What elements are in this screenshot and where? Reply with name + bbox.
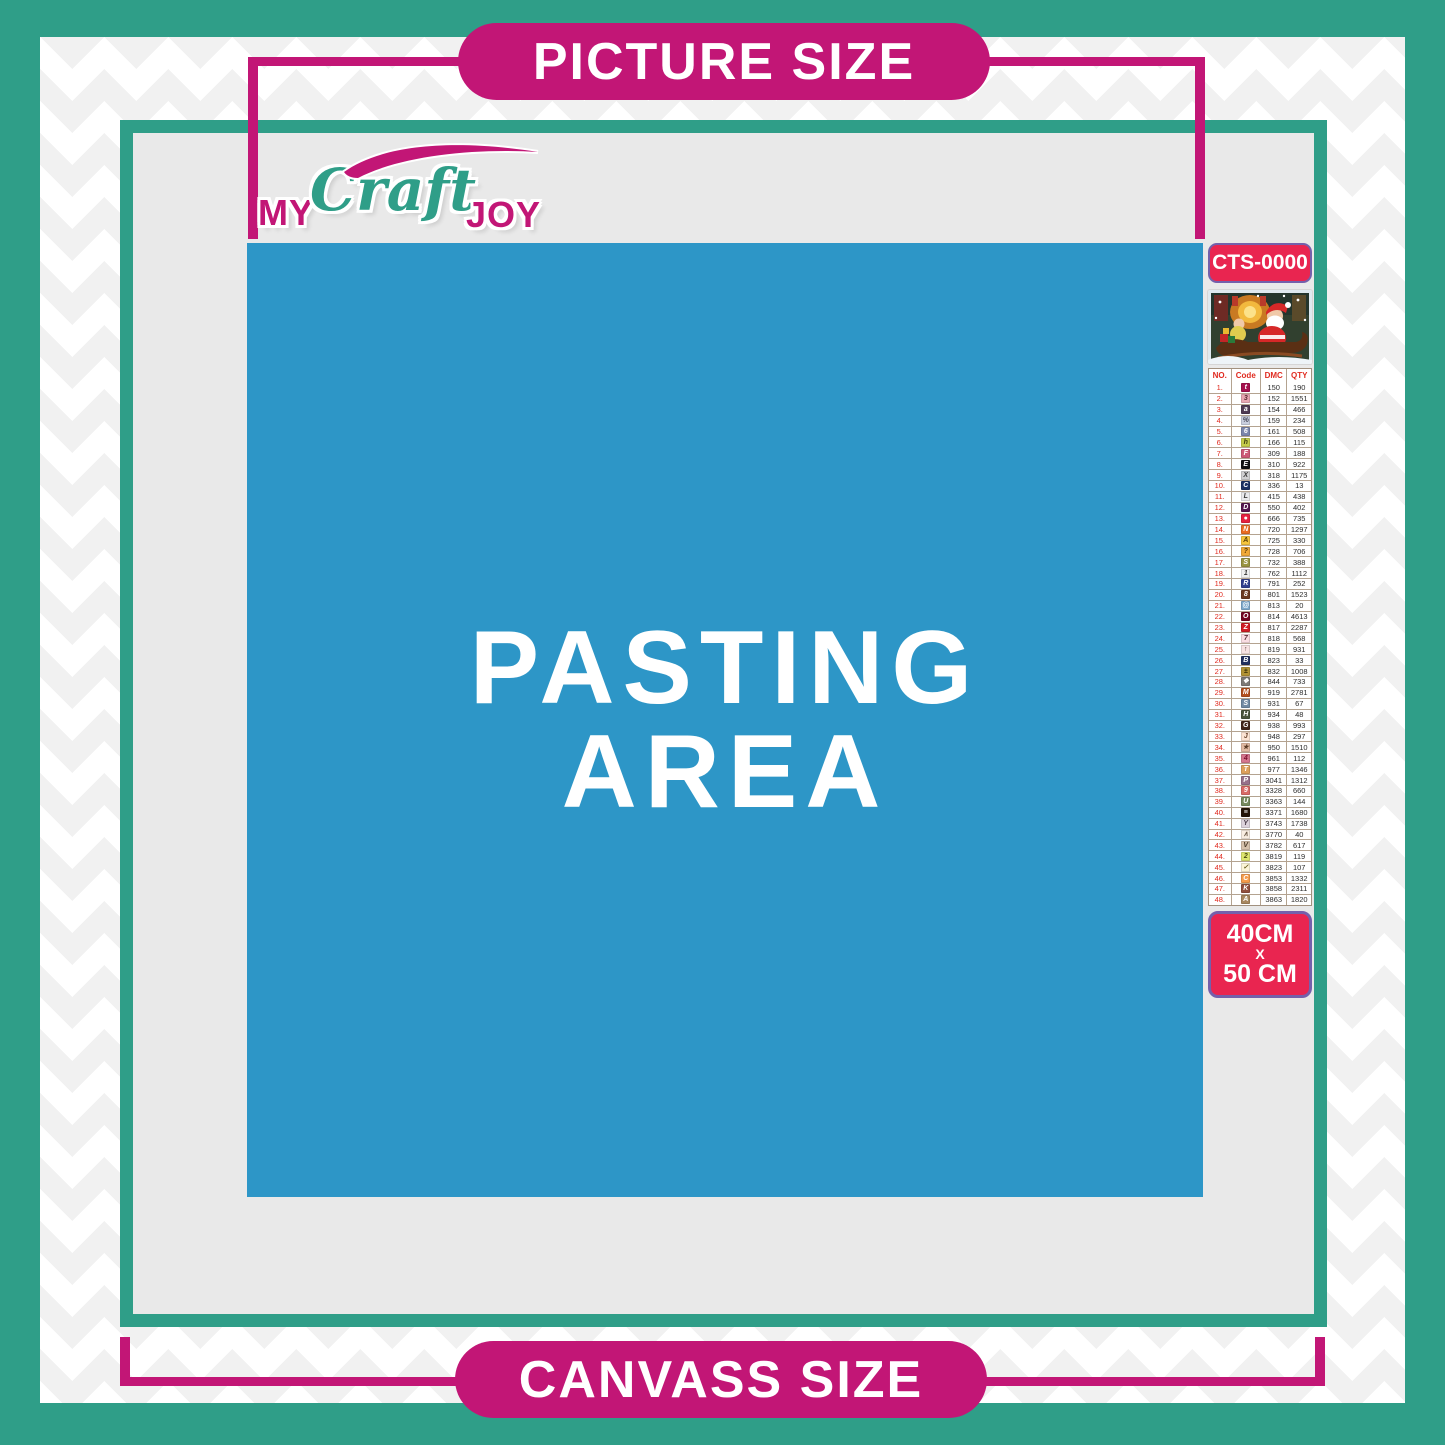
cell-code: t	[1231, 382, 1260, 393]
cell-no: 12.	[1209, 503, 1231, 513]
dmc-table-row: 25.↑819931	[1209, 643, 1311, 654]
cell-dmc: 791	[1260, 579, 1286, 589]
cell-no: 34.	[1209, 742, 1231, 752]
cell-code: @	[1231, 601, 1260, 611]
color-symbol-chip: F	[1241, 449, 1250, 458]
cell-qty: 568	[1286, 633, 1311, 643]
cell-dmc: 3782	[1260, 840, 1286, 850]
cell-no: 44.	[1209, 851, 1231, 861]
cell-qty: 922	[1286, 459, 1311, 469]
cell-dmc: 666	[1260, 514, 1286, 524]
cell-dmc: 3371	[1260, 808, 1286, 818]
color-symbol-chip: X	[1241, 471, 1250, 480]
cell-code: O	[1231, 612, 1260, 622]
cell-code: 6	[1231, 427, 1260, 437]
cell-code: E	[1231, 459, 1260, 469]
color-symbol-chip: h	[1241, 438, 1250, 447]
cell-qty: 617	[1286, 840, 1311, 850]
dmc-table-row: 37.P30411312	[1209, 774, 1311, 785]
cell-dmc: 948	[1260, 732, 1286, 742]
cell-no: 45.	[1209, 862, 1231, 872]
cell-dmc: 732	[1260, 557, 1286, 567]
color-symbol-chip: B	[1241, 656, 1250, 665]
color-symbol-chip: R	[1241, 579, 1250, 588]
color-symbol-chip: Z	[1241, 623, 1250, 632]
cell-dmc: 3853	[1260, 873, 1286, 883]
canvass-size-bracket-left	[120, 1337, 130, 1386]
cell-no: 7.	[1209, 448, 1231, 458]
cell-dmc: 813	[1260, 601, 1286, 611]
color-symbol-chip: ●	[1241, 514, 1250, 523]
picture-size-bracket-right	[1195, 57, 1205, 239]
dmc-table-row: 39.U3363144	[1209, 796, 1311, 807]
dmc-table-row: 11.L415438	[1209, 491, 1311, 502]
cell-qty: 188	[1286, 448, 1311, 458]
color-symbol-chip: 7	[1241, 634, 1250, 643]
cell-no: 32.	[1209, 721, 1231, 731]
cell-dmc: 3770	[1260, 830, 1286, 840]
cell-qty: 1523	[1286, 590, 1311, 600]
cell-code: A	[1231, 895, 1260, 905]
color-symbol-chip: S	[1241, 699, 1250, 708]
dmc-table-row: 38.93328660	[1209, 785, 1311, 796]
cell-code: V	[1231, 840, 1260, 850]
cell-code: R	[1231, 579, 1260, 589]
color-symbol-chip: ✓	[1241, 863, 1250, 872]
cell-qty: 1312	[1286, 775, 1311, 785]
dmc-table-row: 6.h166115	[1209, 436, 1311, 447]
cell-dmc: 3328	[1260, 786, 1286, 796]
cell-code: %	[1231, 416, 1260, 426]
dmc-table-row: 21.@81320	[1209, 600, 1311, 611]
cell-qty: 1112	[1286, 568, 1311, 578]
cell-code: h	[1231, 437, 1260, 447]
dmc-table-header: NO. Code DMC QTY	[1209, 369, 1311, 382]
infographic-canvas: PICTURE SIZE CANVASS SIZE MY Craft JOY P…	[0, 0, 1445, 1445]
color-symbol-chip: a	[1241, 405, 1250, 414]
dmc-table-row: 28.❖844733	[1209, 676, 1311, 687]
cell-dmc: 3823	[1260, 862, 1286, 872]
cell-qty: 13	[1286, 481, 1311, 491]
color-symbol-chip: P	[1241, 776, 1250, 785]
cell-no: 39.	[1209, 797, 1231, 807]
cell-qty: 706	[1286, 546, 1311, 556]
cell-qty: 2287	[1286, 623, 1311, 633]
header-code: Code	[1231, 369, 1260, 382]
color-symbol-chip: ≡	[1241, 808, 1250, 817]
cell-code: ≡	[1231, 808, 1260, 818]
cell-no: 31.	[1209, 710, 1231, 720]
dmc-table-row: 14.N7201297	[1209, 524, 1311, 535]
size-height-text: 50 CM	[1223, 962, 1297, 988]
cell-code: S	[1231, 557, 1260, 567]
cell-code: ★	[1231, 742, 1260, 752]
cell-code: J	[1231, 732, 1260, 742]
cell-no: 5.	[1209, 427, 1231, 437]
cell-qty: 1510	[1286, 742, 1311, 752]
cell-no: 2.	[1209, 394, 1231, 404]
cell-code: A	[1231, 535, 1260, 545]
dmc-table-row: 47.K38582311	[1209, 883, 1311, 894]
color-symbol-chip: 8	[1241, 590, 1250, 599]
cell-dmc: 818	[1260, 633, 1286, 643]
cell-no: 25.	[1209, 644, 1231, 654]
dmc-table-row: 16.?728706	[1209, 545, 1311, 556]
cell-code: 4	[1231, 753, 1260, 763]
cell-no: 15.	[1209, 535, 1231, 545]
dmc-table-row: 43.V3782617	[1209, 839, 1311, 850]
color-symbol-chip: C	[1241, 874, 1250, 883]
color-symbol-chip: K	[1241, 884, 1250, 893]
cell-qty: 931	[1286, 644, 1311, 654]
dmc-table-row: 34.★9501510	[1209, 741, 1311, 752]
cell-no: 14.	[1209, 525, 1231, 535]
dmc-table-row: 40.≡33711680	[1209, 807, 1311, 818]
cell-qty: 1551	[1286, 394, 1311, 404]
canvass-size-text: CANVASS SIZE	[519, 1350, 923, 1410]
cell-qty: 735	[1286, 514, 1311, 524]
cell-qty: 1175	[1286, 470, 1311, 480]
cell-no: 35.	[1209, 753, 1231, 763]
cell-dmc: 832	[1260, 666, 1286, 676]
dmc-table-row: 3.a154466	[1209, 404, 1311, 415]
color-symbol-chip: ±	[1241, 667, 1250, 676]
cell-code: 2	[1231, 851, 1260, 861]
dmc-table-row: 12.D550402	[1209, 502, 1311, 513]
cell-code: C	[1231, 481, 1260, 491]
cell-no: 23.	[1209, 623, 1231, 633]
dmc-table-row: 22.O8144613	[1209, 611, 1311, 622]
color-symbol-chip: Y	[1241, 819, 1250, 828]
cell-code: L	[1231, 492, 1260, 502]
color-symbol-chip: 9	[1241, 786, 1250, 795]
cell-dmc: 950	[1260, 742, 1286, 752]
color-symbol-chip: 4	[1241, 754, 1250, 763]
cell-no: 47.	[1209, 884, 1231, 894]
cell-qty: 252	[1286, 579, 1311, 589]
cell-no: 6.	[1209, 437, 1231, 447]
dmc-table-row: 18.17621112	[1209, 567, 1311, 578]
cell-no: 16.	[1209, 546, 1231, 556]
cell-dmc: 934	[1260, 710, 1286, 720]
cell-code: G	[1231, 721, 1260, 731]
cell-code: M	[1231, 688, 1260, 698]
color-symbol-chip: ∧	[1241, 830, 1250, 839]
cell-dmc: 977	[1260, 764, 1286, 774]
dmc-table-row: 30.S93167	[1209, 698, 1311, 709]
dmc-table-row: 27.±8321008	[1209, 665, 1311, 676]
cell-no: 40.	[1209, 808, 1231, 818]
cell-dmc: 159	[1260, 416, 1286, 426]
cell-code: Z	[1231, 623, 1260, 633]
product-code-badge: CTS-0000	[1208, 243, 1312, 283]
color-legend-panel: CTS-0000	[1208, 243, 1312, 283]
cell-dmc: 725	[1260, 535, 1286, 545]
cell-no: 20.	[1209, 590, 1231, 600]
cell-code: 3	[1231, 394, 1260, 404]
dmc-table-row: 20.88011523	[1209, 589, 1311, 600]
cell-qty: 733	[1286, 677, 1311, 687]
dmc-table-row: 35.4961112	[1209, 752, 1311, 763]
cell-qty: 4613	[1286, 612, 1311, 622]
cell-no: 11.	[1209, 492, 1231, 502]
color-symbol-chip: ?	[1241, 547, 1250, 556]
cell-code: 1	[1231, 568, 1260, 578]
dmc-table-row: 19.R791252	[1209, 578, 1311, 589]
dmc-table-row: 13.●666735	[1209, 513, 1311, 524]
cell-no: 9.	[1209, 470, 1231, 480]
cell-code: U	[1231, 797, 1260, 807]
dmc-table-row: 10.C33613	[1209, 480, 1311, 491]
cell-code: 7	[1231, 633, 1260, 643]
cell-dmc: 310	[1260, 459, 1286, 469]
cell-qty: 1346	[1286, 764, 1311, 774]
cell-dmc: 336	[1260, 481, 1286, 491]
cell-qty: 438	[1286, 492, 1311, 502]
cell-no: 17.	[1209, 557, 1231, 567]
cell-no: 38.	[1209, 786, 1231, 796]
cell-code: B	[1231, 655, 1260, 665]
color-symbol-chip: t	[1241, 383, 1250, 392]
cell-qty: 144	[1286, 797, 1311, 807]
cell-dmc: 318	[1260, 470, 1286, 480]
color-symbol-chip: H	[1241, 710, 1250, 719]
cell-qty: 993	[1286, 721, 1311, 731]
cell-qty: 660	[1286, 786, 1311, 796]
cell-dmc: 844	[1260, 677, 1286, 687]
cell-code: P	[1231, 775, 1260, 785]
picture-size-label: PICTURE SIZE	[458, 23, 990, 100]
cell-qty: 297	[1286, 732, 1311, 742]
color-symbol-chip: N	[1241, 525, 1250, 534]
cell-no: 10.	[1209, 481, 1231, 491]
cell-dmc: 801	[1260, 590, 1286, 600]
color-symbol-chip: A	[1241, 536, 1250, 545]
cell-code: F	[1231, 448, 1260, 458]
cell-qty: 107	[1286, 862, 1311, 872]
cell-no: 18.	[1209, 568, 1231, 578]
cell-code: 9	[1231, 786, 1260, 796]
canvass-size-label: CANVASS SIZE	[455, 1341, 987, 1418]
cell-dmc: 309	[1260, 448, 1286, 458]
cell-dmc: 3743	[1260, 819, 1286, 829]
dmc-table-row: 23.Z8172287	[1209, 622, 1311, 633]
cell-code: ±	[1231, 666, 1260, 676]
dmc-table-row: 1.t150190	[1209, 382, 1311, 393]
cell-code: S	[1231, 699, 1260, 709]
logo-my-text: MY	[258, 192, 314, 234]
dmc-table-row: 7.F309188	[1209, 447, 1311, 458]
cell-no: 43.	[1209, 840, 1231, 850]
dmc-table-body: 1.t1501902.315215513.a1544664.%1592345.6…	[1209, 382, 1311, 905]
dmc-table-row: 36.T9771346	[1209, 763, 1311, 774]
cell-dmc: 762	[1260, 568, 1286, 578]
pasting-area-text-line1: PASTING	[470, 616, 981, 720]
pasting-area-text-line2: AREA	[562, 720, 889, 824]
dmc-table-row: 48.A38631820	[1209, 894, 1311, 905]
dmc-table-row: 9.X3181175	[1209, 469, 1311, 480]
cell-qty: 1680	[1286, 808, 1311, 818]
cell-no: 46.	[1209, 873, 1231, 883]
cell-no: 26.	[1209, 655, 1231, 665]
color-symbol-chip: L	[1241, 492, 1250, 501]
header-qty: QTY	[1286, 369, 1311, 382]
dmc-table-row: 46.C38531332	[1209, 872, 1311, 883]
cell-qty: 119	[1286, 851, 1311, 861]
cell-dmc: 150	[1260, 382, 1286, 393]
cell-dmc: 720	[1260, 525, 1286, 535]
cell-code: ✓	[1231, 862, 1260, 872]
color-symbol-chip: 3	[1241, 394, 1250, 403]
cell-dmc: 152	[1260, 394, 1286, 404]
dmc-table-row: 24.7818568	[1209, 632, 1311, 643]
cell-qty: 1332	[1286, 873, 1311, 883]
cell-dmc: 3363	[1260, 797, 1286, 807]
cell-code: Y	[1231, 819, 1260, 829]
cell-code: H	[1231, 710, 1260, 720]
cell-no: 28.	[1209, 677, 1231, 687]
brush-swoosh-icon	[338, 138, 548, 182]
dmc-table-row: 8.E310922	[1209, 458, 1311, 469]
canvass-size-bracket-right	[1315, 1337, 1325, 1386]
color-symbol-chip: ↑	[1241, 645, 1250, 654]
cell-qty: 115	[1286, 437, 1311, 447]
cell-no: 36.	[1209, 764, 1231, 774]
dmc-table-row: 5.6161508	[1209, 426, 1311, 437]
cell-dmc: 931	[1260, 699, 1286, 709]
cell-no: 24.	[1209, 633, 1231, 643]
header-dmc: DMC	[1260, 369, 1286, 382]
dmc-table-row: 33.J948297	[1209, 731, 1311, 742]
dmc-table-row: 26.B82333	[1209, 654, 1311, 665]
size-width-text: 40CM	[1227, 922, 1294, 948]
cell-dmc: 154	[1260, 405, 1286, 415]
cell-qty: 112	[1286, 753, 1311, 763]
color-symbol-chip: ❖	[1241, 677, 1250, 686]
cell-qty: 67	[1286, 699, 1311, 709]
cell-dmc: 550	[1260, 503, 1286, 513]
cell-qty: 40	[1286, 830, 1311, 840]
cell-code: ∧	[1231, 830, 1260, 840]
cell-dmc: 817	[1260, 623, 1286, 633]
dmc-color-table: NO. Code DMC QTY 1.t1501902.315215513.a1…	[1208, 368, 1312, 906]
cell-qty: 1008	[1286, 666, 1311, 676]
cell-no: 42.	[1209, 830, 1231, 840]
cell-qty: 330	[1286, 535, 1311, 545]
cell-dmc: 3819	[1260, 851, 1286, 861]
product-thumbnail-image	[1208, 290, 1312, 364]
cell-code: X	[1231, 470, 1260, 480]
cell-no: 22.	[1209, 612, 1231, 622]
cell-dmc: 3858	[1260, 884, 1286, 894]
cell-code: N	[1231, 525, 1260, 535]
dmc-table-row: 15.A725330	[1209, 534, 1311, 545]
cell-code: ❖	[1231, 677, 1260, 687]
cell-qty: 190	[1286, 382, 1311, 393]
color-symbol-chip: E	[1241, 460, 1250, 469]
cell-qty: 466	[1286, 405, 1311, 415]
cell-no: 13.	[1209, 514, 1231, 524]
color-symbol-chip: A	[1241, 895, 1250, 904]
dmc-table-row: 44.23819119	[1209, 850, 1311, 861]
color-symbol-chip: C	[1241, 481, 1250, 490]
cell-no: 37.	[1209, 775, 1231, 785]
dmc-table-row: 45.✓3823107	[1209, 861, 1311, 872]
cell-dmc: 161	[1260, 427, 1286, 437]
cell-code: C	[1231, 873, 1260, 883]
cell-dmc: 166	[1260, 437, 1286, 447]
cell-code: ●	[1231, 514, 1260, 524]
color-symbol-chip: T	[1241, 765, 1250, 774]
product-code-text: CTS-0000	[1212, 251, 1308, 275]
header-no: NO.	[1209, 369, 1231, 382]
dmc-table-row: 29.M9192781	[1209, 687, 1311, 698]
cell-code: T	[1231, 764, 1260, 774]
dmc-table-row: 32.G938993	[1209, 720, 1311, 731]
cell-no: 1.	[1209, 382, 1231, 393]
cell-dmc: 728	[1260, 546, 1286, 556]
cell-dmc: 819	[1260, 644, 1286, 654]
cell-qty: 1297	[1286, 525, 1311, 535]
cell-dmc: 814	[1260, 612, 1286, 622]
cell-no: 3.	[1209, 405, 1231, 415]
cell-qty: 508	[1286, 427, 1311, 437]
color-symbol-chip: G	[1241, 721, 1250, 730]
cell-code: 8	[1231, 590, 1260, 600]
color-symbol-chip: 6	[1241, 427, 1250, 436]
cell-code: K	[1231, 884, 1260, 894]
cell-no: 21.	[1209, 601, 1231, 611]
cell-qty: 1738	[1286, 819, 1311, 829]
cell-no: 27.	[1209, 666, 1231, 676]
cell-qty: 388	[1286, 557, 1311, 567]
cell-dmc: 961	[1260, 753, 1286, 763]
color-symbol-chip: O	[1241, 612, 1250, 621]
cell-qty: 234	[1286, 416, 1311, 426]
color-symbol-chip: J	[1241, 732, 1250, 741]
cell-qty: 402	[1286, 503, 1311, 513]
color-symbol-chip: D	[1241, 503, 1250, 512]
dmc-table-row: 31.H93448	[1209, 709, 1311, 720]
picture-size-text: PICTURE SIZE	[533, 32, 915, 92]
picture-size-bracket-left	[248, 57, 258, 239]
color-symbol-chip: S	[1241, 558, 1250, 567]
cell-no: 8.	[1209, 459, 1231, 469]
cell-no: 48.	[1209, 895, 1231, 905]
cell-no: 33.	[1209, 732, 1231, 742]
color-symbol-chip: 2	[1241, 852, 1250, 861]
color-symbol-chip: U	[1241, 797, 1250, 806]
dmc-table-row: 17.S732388	[1209, 556, 1311, 567]
cell-dmc: 919	[1260, 688, 1286, 698]
cell-no: 41.	[1209, 819, 1231, 829]
color-symbol-chip: @	[1241, 601, 1250, 610]
color-symbol-chip: V	[1241, 841, 1250, 850]
cell-qty: 33	[1286, 655, 1311, 665]
cell-code: a	[1231, 405, 1260, 415]
cell-no: 29.	[1209, 688, 1231, 698]
cell-no: 19.	[1209, 579, 1231, 589]
pasting-area: PASTING AREA	[247, 243, 1203, 1197]
cell-no: 4.	[1209, 416, 1231, 426]
cell-qty: 2781	[1286, 688, 1311, 698]
cell-code: ↑	[1231, 644, 1260, 654]
santa-sleigh-illustration	[1208, 290, 1312, 364]
cell-qty: 20	[1286, 601, 1311, 611]
cell-dmc: 3863	[1260, 895, 1286, 905]
cell-no: 30.	[1209, 699, 1231, 709]
cell-qty: 1820	[1286, 895, 1311, 905]
